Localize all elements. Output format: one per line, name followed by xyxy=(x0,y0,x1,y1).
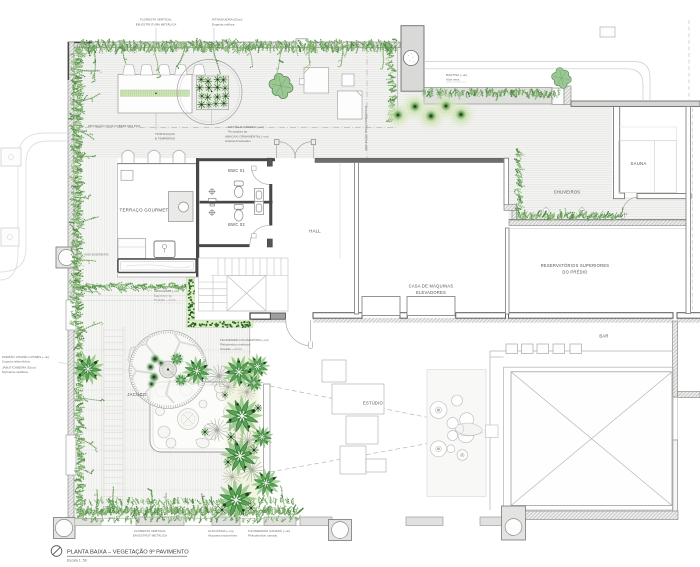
svg-text:TERRAÇO GOURMET: TERRAÇO GOURMET xyxy=(120,208,169,213)
svg-text:CHUVEIROS: CHUVEIROS xyxy=(554,190,581,195)
svg-text:BAR: BAR xyxy=(599,334,608,339)
svg-text:PROJEÇÃO NOVA COBERTURA FIXA: PROJEÇÃO NOVA COBERTURA FIXA xyxy=(88,123,140,128)
svg-text:PADRÃO CHAPÉU CHINÊS (~un): PADRÃO CHAPÉU CHINÊS (~un) xyxy=(2,354,49,359)
svg-text:BWC 01: BWC 01 xyxy=(228,168,245,173)
svg-text:JACUZZI: JACUZZI xyxy=(127,392,146,397)
svg-text:Escala 1: 50: Escala 1: 50 xyxy=(67,559,87,563)
svg-text:E TEMPEROS: E TEMPEROS xyxy=(155,137,175,141)
svg-text:DO PRÉDIO: DO PRÉDIO xyxy=(562,270,587,275)
svg-text:ESTÚDIO: ESTÚDIO xyxy=(363,401,383,406)
svg-text:Toração ~~2 cm: Toração ~~2 cm xyxy=(220,347,242,351)
svg-text:FILODENDRO DA AMAZÔNIA (~un): FILODENDRO DA AMAZÔNIA (~un) xyxy=(220,337,269,342)
svg-text:Alocasia macrorrhiza: Alocasia macrorrhiza xyxy=(208,534,237,538)
svg-text:ABACAXI ORNAMENTAL (~un): ABACAXI ORNAMENTAL (~un) xyxy=(225,135,269,139)
svg-text:BANTISA (~un): BANTISA (~un) xyxy=(446,73,467,77)
svg-text:PLANTA BAIXA – VEGETAÇÃO 9º PA: PLANTA BAIXA – VEGETAÇÃO 9º PAVIMENTO xyxy=(67,549,189,556)
svg-text:RESERVATÓRIOS SUPERIORES: RESERVATÓRIOS SUPERIORES xyxy=(541,263,610,268)
svg-text:JABUTICABEIRA (01un): JABUTICABEIRA (01un) xyxy=(2,366,36,370)
svg-text:EM ESTRUTURA METÁLICA: EM ESTRUTURA METÁLICA xyxy=(136,23,178,27)
svg-text:Tonação ~~2 cm: Tonação ~~2 cm xyxy=(154,298,176,302)
svg-text:BWC 02: BWC 02 xyxy=(228,222,245,227)
svg-text:SAUNA: SAUNA xyxy=(630,161,646,166)
svg-text:ALOCÁSSIA (~un): ALOCÁSSIA (~un) xyxy=(208,529,234,533)
svg-text:FLORESTA VERTICAL: FLORESTA VERTICAL xyxy=(134,529,166,533)
svg-text:CASA DE MÁQUINAS: CASA DE MÁQUINAS xyxy=(409,284,454,289)
svg-text:PROJEÇÃO NOVA COBERTURA: PROJEÇÃO NOVA COBERTURA xyxy=(363,105,368,150)
svg-text:MICHÉLIA FÉRREA (~un): MICHÉLIA FÉRREA (~un) xyxy=(228,124,264,129)
svg-text:VIGA EXISTENTE: VIGA EXISTENTE xyxy=(84,253,109,257)
svg-text:ELEVADORES: ELEVADORES xyxy=(416,290,446,295)
svg-text:PITANGUEIRA (02un): PITANGUEIRA (02un) xyxy=(212,18,242,22)
svg-text:Philodendron melinonii: Philodendron melinonii xyxy=(220,343,251,347)
svg-text:Myrciaria cauliflora: Myrciaria cauliflora xyxy=(2,370,28,374)
svg-text:Cyperus alternifolius: Cyperus alternifolius xyxy=(2,360,30,364)
svg-text:HALL: HALL xyxy=(309,229,321,234)
svg-text:FILODENDRO XANADÚ (~un): FILODENDRO XANADÚ (~un) xyxy=(248,529,290,533)
svg-text:Tecnoglota sp.: Tecnoglota sp. xyxy=(228,130,248,134)
svg-text:Aloe vera: Aloe vera xyxy=(446,78,459,82)
svg-text:EM ESTRUT METÁLICA: EM ESTRUT METÁLICA xyxy=(133,534,168,538)
svg-text:FLORESTA VERTICAL: FLORESTA VERTICAL xyxy=(140,18,172,22)
svg-text:Eugenia uniflora: Eugenia uniflora xyxy=(212,23,235,27)
svg-text:GRAVÁZIRIB (~un): GRAVÁZIRIB (~un) xyxy=(154,289,179,293)
svg-text:HORTALIÇAS: HORTALIÇAS xyxy=(155,132,174,136)
svg-text:Philodendron xanadu: Philodendron xanadu xyxy=(248,534,278,538)
svg-text:Ananas bracteatus: Ananas bracteatus xyxy=(225,139,251,143)
